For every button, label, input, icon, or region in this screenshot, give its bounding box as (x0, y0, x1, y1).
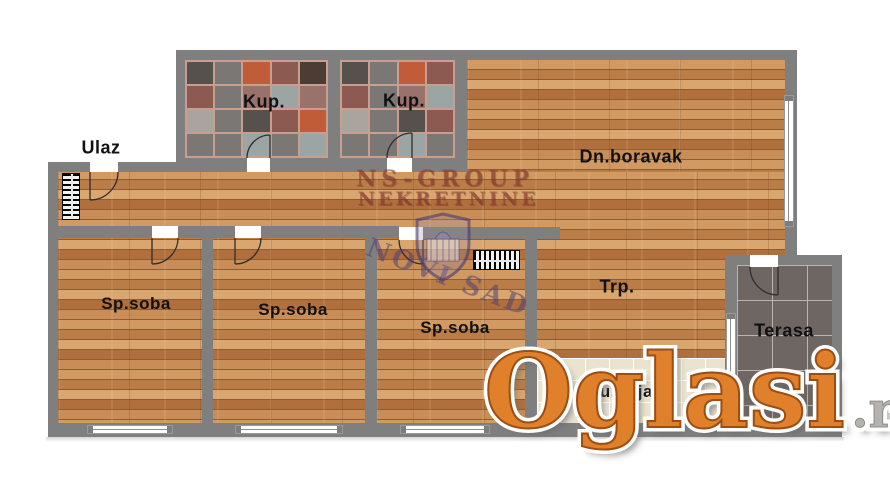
door-gap-bed1 (152, 226, 178, 238)
room-label-kuhinja: Kuhinja (587, 382, 653, 402)
wall-bath-bottom-a (176, 158, 247, 172)
bath-tile (243, 110, 269, 132)
bath-tile (187, 110, 213, 132)
bath-tile (370, 110, 396, 132)
wall-bath-left (176, 50, 185, 172)
wall-bed3-kitchen (525, 238, 537, 423)
room-label-ulaz: Ulaz (81, 138, 120, 159)
bath-tile (427, 86, 453, 108)
window-bedroom2 (235, 425, 343, 434)
room-label-spsoba-2: Sp.soba (258, 300, 328, 320)
bath-tile (427, 134, 453, 156)
bath-tile (272, 134, 298, 156)
window-bedroom1 (87, 425, 173, 434)
bath-tile (187, 62, 213, 84)
bath-tile (370, 62, 396, 84)
door-gap-bed2 (235, 226, 261, 238)
bath-tile (427, 62, 453, 84)
wall-bath-divider (328, 60, 340, 158)
wall-terrace-right (832, 255, 842, 437)
room-label-kup-1: Kup. (243, 92, 285, 113)
bath-tile (215, 86, 241, 108)
bath-tile (342, 86, 368, 108)
bath-tile (399, 110, 425, 132)
bath-tile (215, 134, 241, 156)
wall-left-main (48, 162, 58, 437)
bath-tile (399, 134, 425, 156)
floor-plan: Ulaz Kup. Kup. Dn.boravak Sp.soba Sp.sob… (0, 0, 890, 482)
bath-tile (342, 134, 368, 156)
room-label-spsoba-1: Sp.soba (101, 294, 171, 314)
radiator-bed3-icon (473, 250, 520, 270)
door-gap-bath1 (247, 158, 270, 172)
bath-tile (215, 110, 241, 132)
bath-tile (300, 110, 326, 132)
floor-terrace (737, 265, 832, 423)
wall-hallway-a (58, 226, 152, 238)
bath-tile (215, 62, 241, 84)
room-label-kup-2: Kup. (383, 91, 425, 112)
bath-tile (272, 110, 298, 132)
bath-tile (370, 134, 396, 156)
plan-drop-shadow (46, 437, 844, 442)
radiator-hall-icon (62, 173, 80, 220)
bath-tile (399, 62, 425, 84)
bath-tile (342, 110, 368, 132)
bath-tile (342, 62, 368, 84)
wall-top-main (176, 50, 797, 60)
room-label-dnboravak: Dn.boravak (579, 147, 682, 168)
wall-hall-top-right (118, 162, 185, 172)
bath-tile (272, 62, 298, 84)
room-label-terasa: Terasa (754, 321, 814, 342)
room-label-trp: Trp. (599, 277, 634, 298)
window-living-room (784, 95, 794, 227)
bath-tile (243, 134, 269, 156)
watermark-agency-line2: NEKRETNINE (358, 188, 539, 210)
door-gap-entrance (90, 162, 118, 172)
window-bedroom3 (400, 425, 490, 434)
bath-tile (187, 134, 213, 156)
window-trp-terrace (726, 313, 736, 413)
room-label-spsoba-3: Sp.soba (420, 318, 490, 338)
bath-tile (427, 110, 453, 132)
door-gap-terrace (750, 255, 778, 267)
bath-tile (300, 134, 326, 156)
agency-shield-icon (412, 211, 474, 283)
bath-tile (187, 86, 213, 108)
bath-tile (243, 62, 269, 84)
wall-bed1-bed2 (202, 236, 213, 423)
wall-bath2-right (455, 60, 467, 158)
bath-tile (300, 86, 326, 108)
bath-tile (300, 62, 326, 84)
